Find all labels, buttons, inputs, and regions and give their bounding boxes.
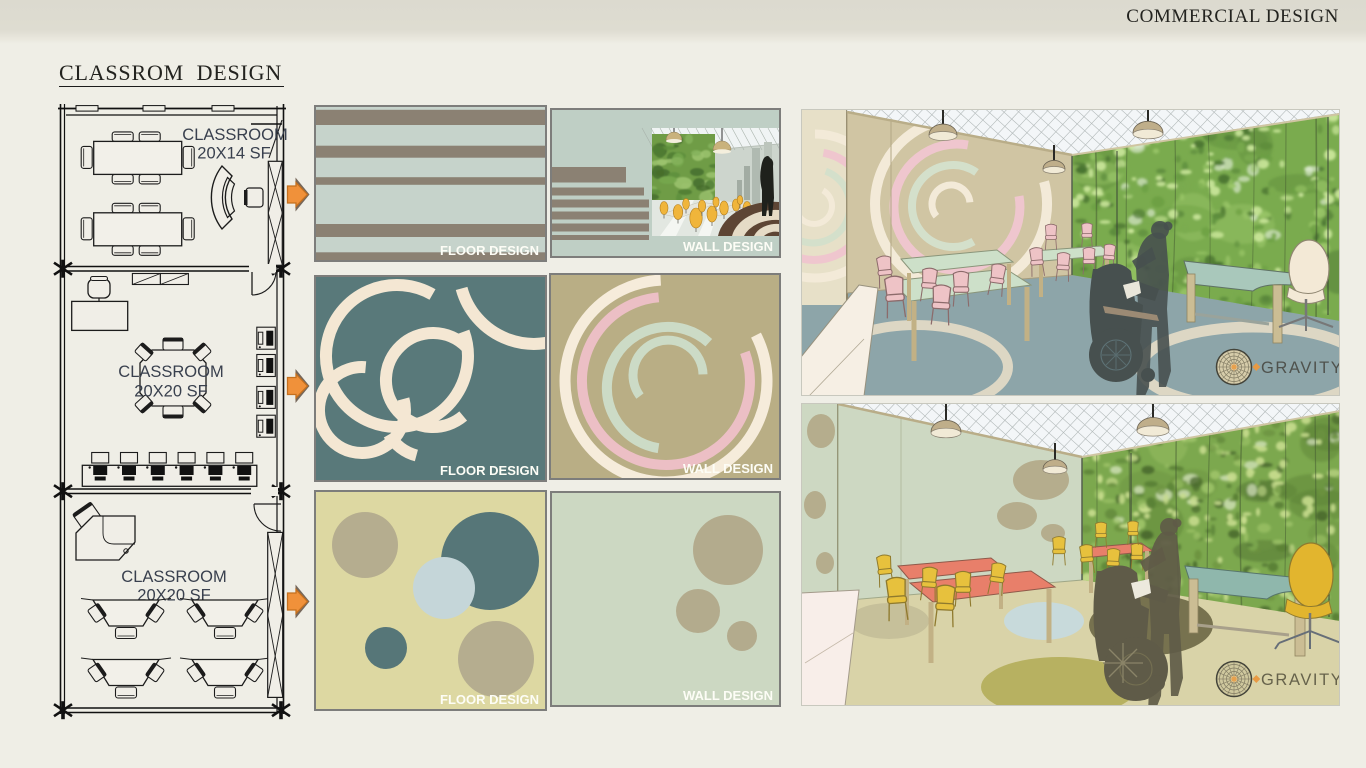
svg-text:FLOOR DESIGN: FLOOR DESIGN bbox=[440, 692, 539, 707]
svg-text:WALL DESIGN: WALL DESIGN bbox=[683, 688, 773, 703]
svg-text:GRAVITY: GRAVITY bbox=[1261, 359, 1340, 377]
svg-text:FLOOR DESIGN: FLOOR DESIGN bbox=[440, 243, 539, 258]
svg-text:FLOOR DESIGN: FLOOR DESIGN bbox=[440, 463, 539, 478]
svg-text:CLASSROOM: CLASSROOM bbox=[182, 126, 287, 144]
svg-text:20X20 SF: 20X20 SF bbox=[134, 383, 207, 401]
svg-text:20X14 SF: 20X14 SF bbox=[197, 145, 270, 163]
svg-text:WALL DESIGN: WALL DESIGN bbox=[683, 461, 773, 476]
svg-text:GRAVITY: GRAVITY bbox=[1261, 671, 1340, 689]
svg-text:CLASSROOM: CLASSROOM bbox=[121, 568, 226, 586]
svg-text:CLASSROOM: CLASSROOM bbox=[118, 363, 223, 381]
svg-text:WALL DESIGN: WALL DESIGN bbox=[683, 239, 773, 254]
